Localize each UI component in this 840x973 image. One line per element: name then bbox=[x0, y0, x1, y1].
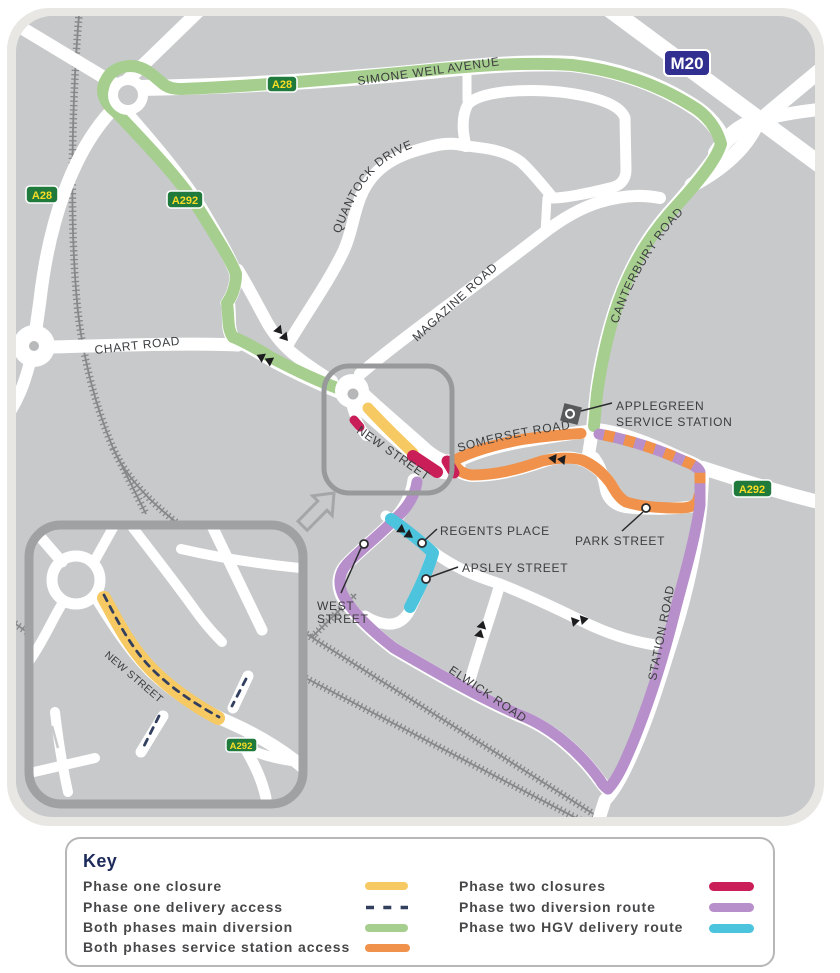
svg-text:Both phases service station ac: Both phases service station access bbox=[83, 939, 350, 955]
svg-text:A28: A28 bbox=[32, 190, 52, 202]
svg-text:Phase one delivery access: Phase one delivery access bbox=[83, 899, 283, 915]
svg-text:REGENTS PLACE: REGENTS PLACE bbox=[440, 524, 550, 538]
svg-text:Phase two HGV delivery route: Phase two HGV delivery route bbox=[459, 919, 683, 935]
svg-text:PARK STREET: PARK STREET bbox=[575, 534, 665, 548]
svg-text:APSLEY STREET: APSLEY STREET bbox=[462, 561, 568, 575]
svg-text:Key: Key bbox=[83, 851, 117, 871]
svg-text:APPLEGREEN: APPLEGREEN bbox=[616, 399, 704, 413]
svg-text:A292: A292 bbox=[172, 195, 198, 207]
svg-text:Phase two diversion route: Phase two diversion route bbox=[459, 899, 656, 915]
svg-text:Phase two closures: Phase two closures bbox=[459, 878, 606, 894]
svg-text:Phase one closure: Phase one closure bbox=[83, 878, 222, 894]
svg-text:M20: M20 bbox=[670, 54, 703, 73]
svg-text:STREET: STREET bbox=[317, 612, 369, 626]
svg-text:A292: A292 bbox=[230, 741, 253, 752]
svg-text:Both phases main diversion: Both phases main diversion bbox=[83, 919, 293, 935]
svg-text:WEST: WEST bbox=[317, 599, 354, 613]
svg-text:A292: A292 bbox=[739, 484, 765, 496]
svg-text:A28: A28 bbox=[272, 79, 292, 91]
svg-text:SERVICE STATION: SERVICE STATION bbox=[616, 415, 733, 429]
